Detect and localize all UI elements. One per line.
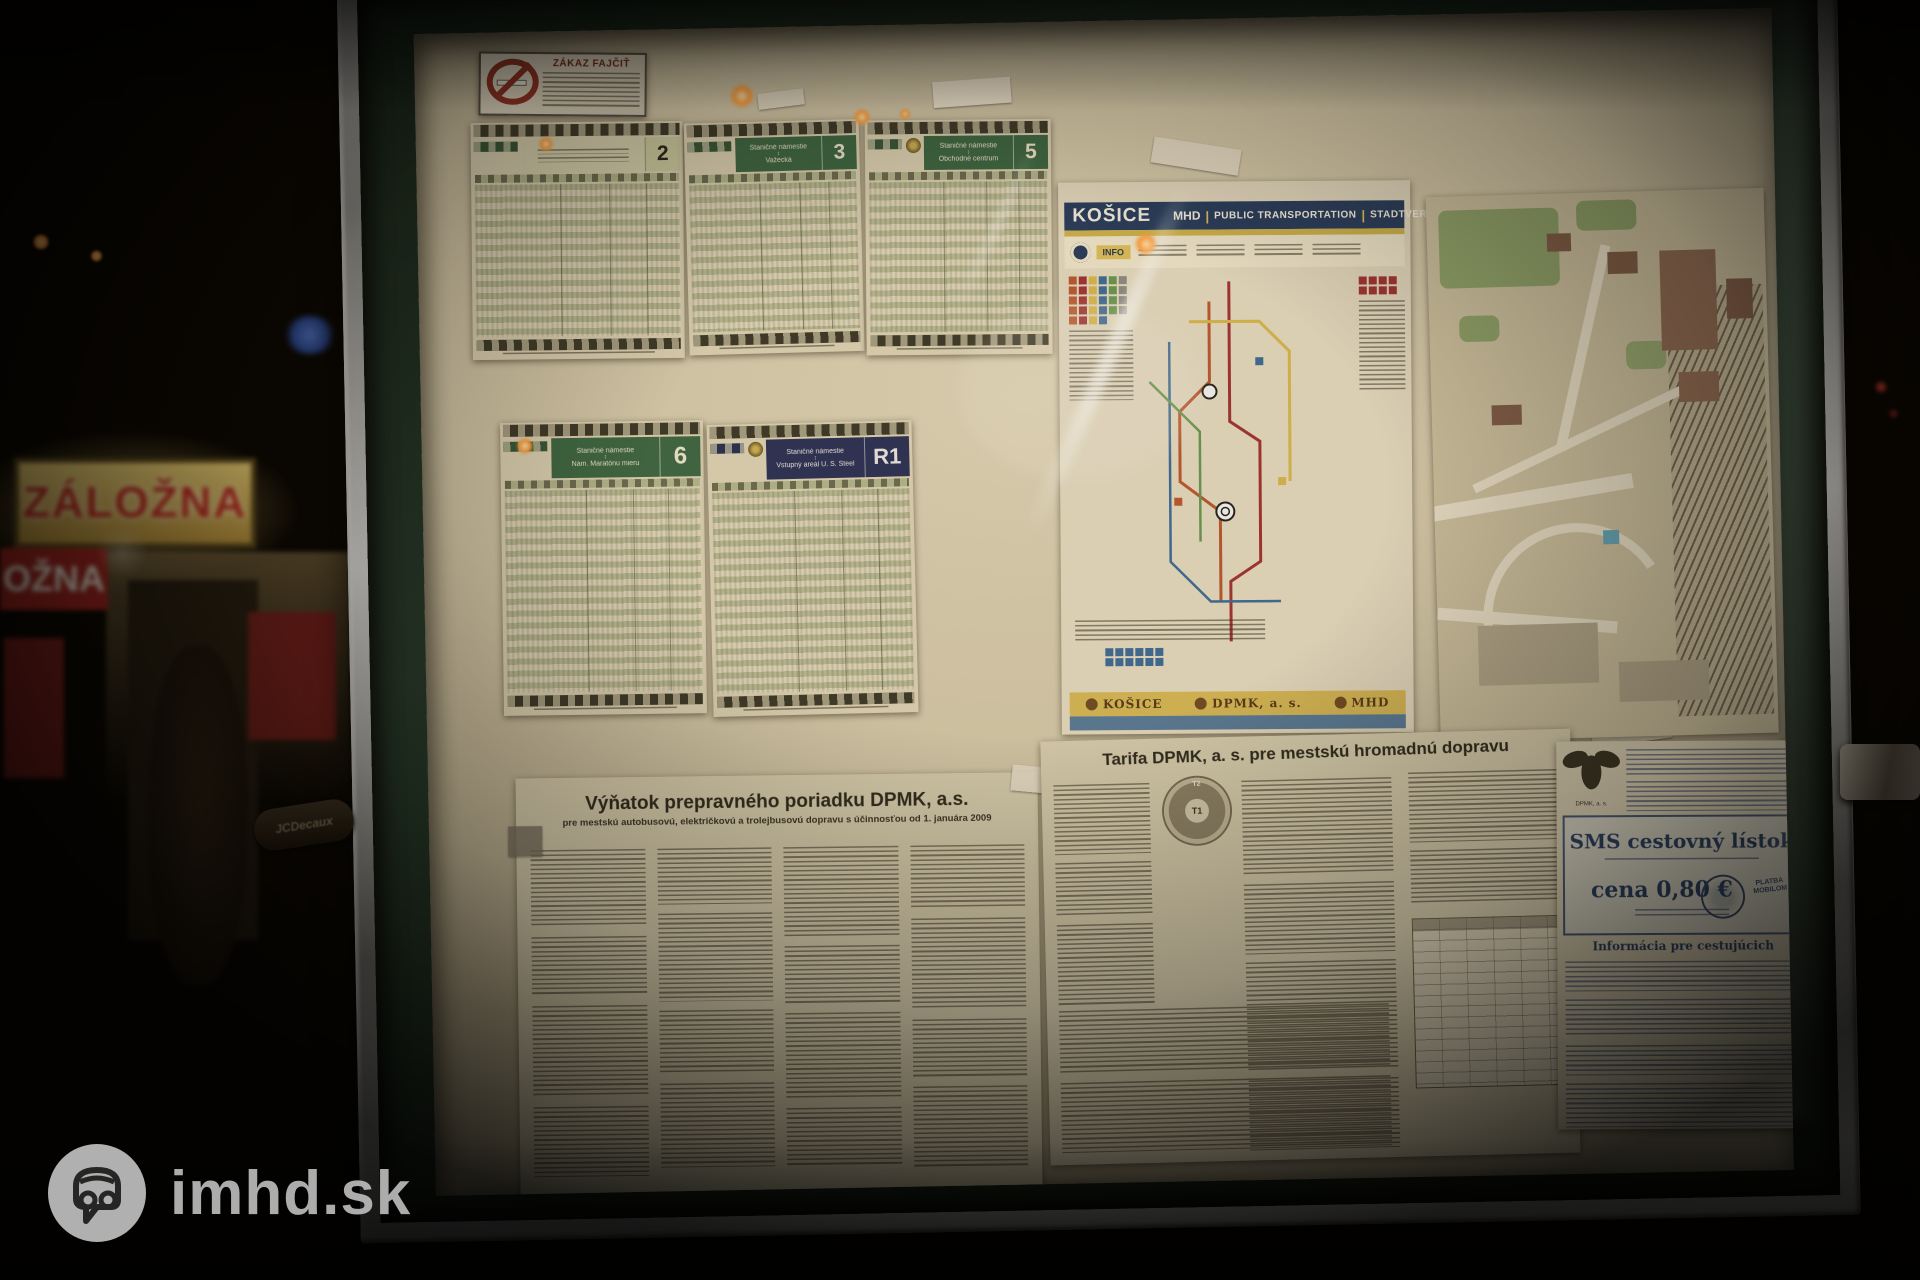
imhd-brand-text: imhd.sk — [170, 1158, 411, 1229]
decorative-detail — [658, 912, 774, 1001]
legend-chip — [1105, 658, 1113, 666]
legend-chip — [1389, 286, 1397, 294]
no-smoking-title: ZÁKAZ FAJČIŤ — [543, 58, 640, 70]
route-number-badge: 3 — [821, 135, 857, 170]
decorative-detail — [1189, 321, 1290, 482]
glass-flare — [538, 136, 554, 152]
night-line-chips — [1359, 276, 1405, 294]
legend-chip — [1089, 286, 1097, 294]
building-block — [1619, 659, 1710, 701]
shop-window-poster — [248, 612, 336, 740]
decorative-detail: Staničné námestie ↕ Obchodné centrum — [924, 135, 1013, 170]
route-endpoint-chip — [687, 141, 731, 152]
route-destination: Nám. Maratónu mieru — [553, 459, 657, 470]
map-city-name: KOŠICE — [1072, 205, 1151, 228]
decorative-detail — [912, 1018, 1027, 1077]
mhd-icon — [1334, 697, 1346, 709]
park-area — [1438, 207, 1560, 288]
adhesive-tape — [757, 88, 805, 110]
legend-chip — [1119, 276, 1127, 284]
timetable-footer-bar — [508, 693, 703, 707]
decorative-detail — [530, 849, 649, 1192]
decorative-detail — [1057, 923, 1155, 1005]
decorative-detail — [657, 847, 772, 904]
zone-inner-label: T1 — [1192, 806, 1203, 816]
shop-banner: OŽNA — [0, 548, 108, 610]
streetlight-glow — [90, 250, 103, 262]
map-title-en: PUBLIC TRANSPORTATION — [1214, 209, 1356, 221]
decorative-detail: Staničné námestie ↕ Vstupný areál U. S. … — [710, 436, 910, 481]
dpmk-roundel-logo — [1070, 242, 1090, 262]
departure-times-grid — [689, 181, 860, 332]
separator: | — [1361, 207, 1365, 222]
decorative-detail: Staničné námestie ↕ Važecká — [735, 136, 822, 172]
timetable-sheet-line-6: Staničné námestie ↕ Nám. Maratónu mieru … — [500, 420, 707, 716]
transport-rules-poster: Výňatok prepravného poriadku DPMK, a.s. … — [515, 772, 1042, 1196]
decorative-detail — [659, 1009, 774, 1074]
latch-brand-text: JCDecaux — [274, 814, 334, 837]
no-smoking-sign: ZÁKAZ FAJČIŤ — [478, 51, 647, 116]
adhesive-tape — [508, 826, 542, 856]
info-label: INFO — [1096, 245, 1130, 259]
jcdecaux-display-case: ZÁKAZ FAJČIŤ 2 — [336, 0, 1860, 1243]
legend-chip — [1145, 658, 1153, 666]
decorative-detail: DPMK, a. s. — [1212, 696, 1302, 711]
column-header-strip — [475, 173, 679, 183]
legend-chip — [1389, 276, 1397, 284]
glass-glow — [960, 300, 1200, 480]
legend-chip — [1359, 286, 1367, 294]
decorative-detail — [1241, 777, 1393, 877]
route-number-badge: 6 — [659, 436, 701, 477]
legend-chip — [1119, 286, 1127, 294]
decorative-detail — [1581, 755, 1601, 789]
glass-edge-reflection — [1756, 0, 1830, 1120]
legend-chip — [1069, 286, 1077, 294]
tariff-lower-text — [1059, 1003, 1392, 1153]
decorative-detail — [657, 847, 776, 1190]
decorative-detail — [48, 1144, 146, 1242]
road — [1426, 473, 1634, 523]
glass-flare — [729, 83, 755, 109]
decorative-detail: ZÁKAZ FAJČIŤ 2 — [357, 0, 1840, 1223]
info-contact-text — [1312, 244, 1360, 258]
decorative-detail: Staničné námestie ↕ Važecká 3 — [687, 135, 857, 173]
timetable-sheet-line-3: Staničné námestie ↕ Važecká 3 — [684, 119, 865, 356]
decorative-detail — [911, 917, 1027, 1010]
shop-sign-text: ZÁLOŽNA — [23, 478, 247, 528]
shop-window-poster — [4, 638, 64, 778]
station-building — [1659, 249, 1718, 351]
decorative-detail — [785, 1012, 901, 1099]
legend-chip — [1125, 648, 1133, 656]
streetlight-glow — [32, 234, 50, 250]
legend-chip — [1379, 276, 1387, 284]
media-partner-logo: MHD — [1334, 695, 1389, 709]
building-block — [1726, 278, 1753, 319]
timetable-footnote — [743, 706, 888, 714]
decorative-detail — [532, 1005, 648, 1098]
timetable-title-bar — [868, 121, 1048, 135]
legend-chip — [1079, 286, 1087, 294]
building-block — [1547, 233, 1571, 252]
legend-chip — [1099, 286, 1107, 294]
info-contact-text — [1196, 244, 1244, 258]
rules-heading: Výňatok prepravného poriadku DPMK, a.s. — [546, 788, 1008, 816]
decorative-detail — [534, 1106, 649, 1177]
decorative-detail — [530, 849, 645, 928]
decorative-detail: Staničné námestie ↕ Nám. Maratónu mieru — [551, 437, 660, 479]
legend-chip — [1069, 276, 1077, 284]
building-block — [1478, 623, 1600, 686]
route-band: Staničné námestie ↕ Važecká 3 — [735, 135, 857, 172]
decorative-detail — [538, 156, 629, 162]
rules-body-columns — [530, 844, 1028, 1192]
route-endpoint-chip — [474, 142, 518, 152]
road — [1555, 244, 1610, 451]
decorative-detail — [783, 846, 899, 937]
city-map-poster — [1426, 188, 1779, 742]
imhd-watermark: imhd.sk — [46, 1142, 411, 1244]
legend-chip — [1079, 276, 1087, 284]
park-area — [1626, 341, 1667, 370]
distant-red-light — [1890, 410, 1897, 417]
info-contact-text — [1254, 244, 1302, 258]
decorative-detail: KOŠICE — [1103, 697, 1163, 711]
building-block — [1679, 371, 1720, 402]
paper-scrap — [932, 77, 1012, 109]
blue-building — [1603, 530, 1619, 544]
legend-chip — [1155, 658, 1163, 666]
tariff-poster: Tarifa DPMK, a. s. pre mestskú hromadnú … — [1040, 729, 1580, 1166]
legend-chip — [1135, 658, 1143, 666]
operator-name: DPMK, a. s. — [1565, 801, 1619, 807]
street-scene: ZÁLOŽNA OŽNA — [0, 0, 360, 1280]
shop-banner-text: OŽNA — [3, 558, 105, 600]
route-number-badge: R1 — [864, 436, 910, 477]
glass-flare — [853, 108, 871, 126]
decorative-detail — [910, 844, 1025, 909]
decorative-detail: Staničné námestie ↕ Vstupný areál U. S. … — [766, 437, 865, 479]
decorative-detail — [487, 59, 539, 105]
decorative-detail: MHD — [1351, 695, 1389, 709]
tariff-zone-diagram: T2 T1 — [1163, 777, 1231, 845]
route-destination: Važecká — [738, 155, 820, 166]
timetable-footnote — [534, 707, 677, 713]
legend-chip — [1109, 276, 1117, 284]
imhd-logo-icon — [46, 1142, 148, 1244]
map-footer-logos: KOŠICE DPMK, a. s. MHD — [1070, 690, 1406, 716]
route-endpoint-chip — [868, 139, 902, 149]
route-band: Staničné námestie ↕ Nám. Maratónu mieru … — [551, 436, 701, 478]
decorative-detail — [1244, 881, 1396, 955]
decorative-detail — [1410, 847, 1569, 903]
glass-dirt-smudge — [96, 524, 148, 580]
map-footer-band — [1070, 714, 1406, 730]
park-area — [1576, 199, 1637, 231]
decorative-detail — [1061, 1075, 1393, 1153]
timetable-title-bar — [473, 123, 679, 137]
building-block — [1491, 405, 1522, 426]
legend-chip — [1135, 648, 1143, 656]
night-photo-transit-info-board: { "watermark": { "brand": "imhd.sk" }, "… — [0, 0, 1920, 1280]
decorative-detail — [1229, 281, 1262, 641]
tariff-left-column — [1053, 783, 1154, 1005]
legend-chip — [1369, 286, 1377, 294]
route-endpoint-chip — [710, 443, 744, 454]
decorative-detail — [1408, 769, 1568, 843]
legend-text — [1359, 300, 1406, 390]
legend-chip — [1125, 658, 1133, 666]
no-smoking-fine-print — [542, 72, 639, 107]
map-key — [1075, 619, 1265, 666]
legend-chip — [1089, 276, 1097, 284]
pawnshop-storefront: ZÁLOŽNA OŽNA — [0, 430, 350, 1030]
dpmk-eagle-emblem: DPMK, a. s. — [1564, 749, 1618, 807]
night-lines-legend — [1359, 276, 1406, 390]
map-info-strip: INFO — [1064, 234, 1404, 268]
tariff-right-column — [1408, 769, 1569, 903]
decorative-detail — [910, 844, 1029, 1187]
city-crest-icon — [1086, 698, 1098, 710]
decorative-detail — [660, 1082, 776, 1167]
dpmk-eagle-logo — [906, 138, 921, 153]
departure-times-grid — [712, 488, 914, 694]
legend-chip — [1115, 658, 1123, 666]
timetable-footnote — [503, 351, 655, 357]
legend-chip — [1099, 276, 1107, 284]
decorative-detail — [785, 945, 900, 1004]
building-block — [1607, 251, 1638, 274]
timetable-title-bar — [503, 422, 700, 437]
decorative-detail — [1174, 498, 1182, 506]
decorative-detail — [1053, 783, 1151, 855]
operator-logo: DPMK, a. s. — [1195, 696, 1302, 711]
decorative-detail — [1278, 477, 1286, 485]
legend-chip — [1369, 276, 1377, 284]
distant-red-light — [1876, 382, 1886, 392]
map-title-bar: KOŠICE MHD | PUBLIC TRANSPORTATION | STA… — [1064, 200, 1404, 230]
poster-board: ZÁKAZ FAJČIŤ 2 — [414, 8, 1794, 1196]
legend-chip — [1145, 648, 1153, 656]
timetable-footer-bar — [477, 338, 681, 351]
legend-chip — [1105, 648, 1113, 656]
eagle-icon — [1195, 698, 1207, 710]
departure-times-grid — [475, 183, 681, 337]
fare-table — [1412, 915, 1576, 1089]
legend-chip — [1379, 286, 1387, 294]
route-band: Staničné námestie ↕ Vstupný areál U. S. … — [766, 436, 910, 479]
park-area — [1459, 315, 1500, 342]
decorative-detail — [1202, 385, 1216, 399]
timetable-footnote — [720, 345, 835, 352]
tariff-heading: Tarifa DPMK, a. s. pre mestskú hromadnú … — [1050, 734, 1560, 772]
timetable-sheet-line-r1: Staničné námestie ↕ Vstupný areál U. S. … — [706, 420, 918, 717]
departure-times-grid — [505, 488, 703, 693]
decorative-detail — [787, 1107, 902, 1168]
decorative-detail — [1059, 1003, 1390, 1075]
timetable-footer-bar — [693, 331, 860, 346]
glass-flare — [516, 437, 534, 455]
decorative-detail: 2 — [474, 137, 680, 173]
decorative-detail — [783, 846, 902, 1189]
adhesive-tape — [1151, 136, 1242, 175]
dpmk-eagle-logo — [748, 442, 763, 457]
decorative-detail — [1255, 357, 1263, 365]
no-smoking-icon — [487, 59, 539, 105]
legend-chip — [1359, 276, 1367, 284]
zone-outer-label: T2 — [1192, 781, 1200, 788]
pedestrian-silhouette — [148, 645, 248, 985]
decorative-detail — [1605, 857, 1759, 863]
decorative-detail — [1216, 502, 1234, 520]
route-destination: Obchodné centrum — [926, 155, 1011, 165]
metal-latch — [1840, 744, 1920, 800]
key-text — [1075, 619, 1265, 642]
legend-chip — [1109, 286, 1117, 294]
route-number-badge: 2 — [645, 137, 680, 171]
glass-flare — [899, 108, 911, 120]
timetable-sheet-line-2: 2 — [470, 121, 684, 360]
legend-chip — [1115, 648, 1123, 656]
decorative-detail — [1055, 861, 1152, 917]
decorative-detail — [531, 936, 646, 997]
separator: | — [1205, 208, 1209, 223]
column-header-strip — [505, 478, 700, 489]
decorative-detail — [913, 1085, 1028, 1166]
legend-chip — [1155, 648, 1163, 656]
terminal-symbols — [1105, 648, 1169, 666]
road — [1472, 381, 1692, 493]
decorative-detail: ZÁKAZ FAJČIŤ — [540, 54, 645, 115]
city-logo: KOŠICE — [1086, 697, 1163, 712]
blue-light-reflection — [284, 316, 336, 354]
route-destination: Vstupný areál U. S. Steel — [768, 460, 862, 471]
